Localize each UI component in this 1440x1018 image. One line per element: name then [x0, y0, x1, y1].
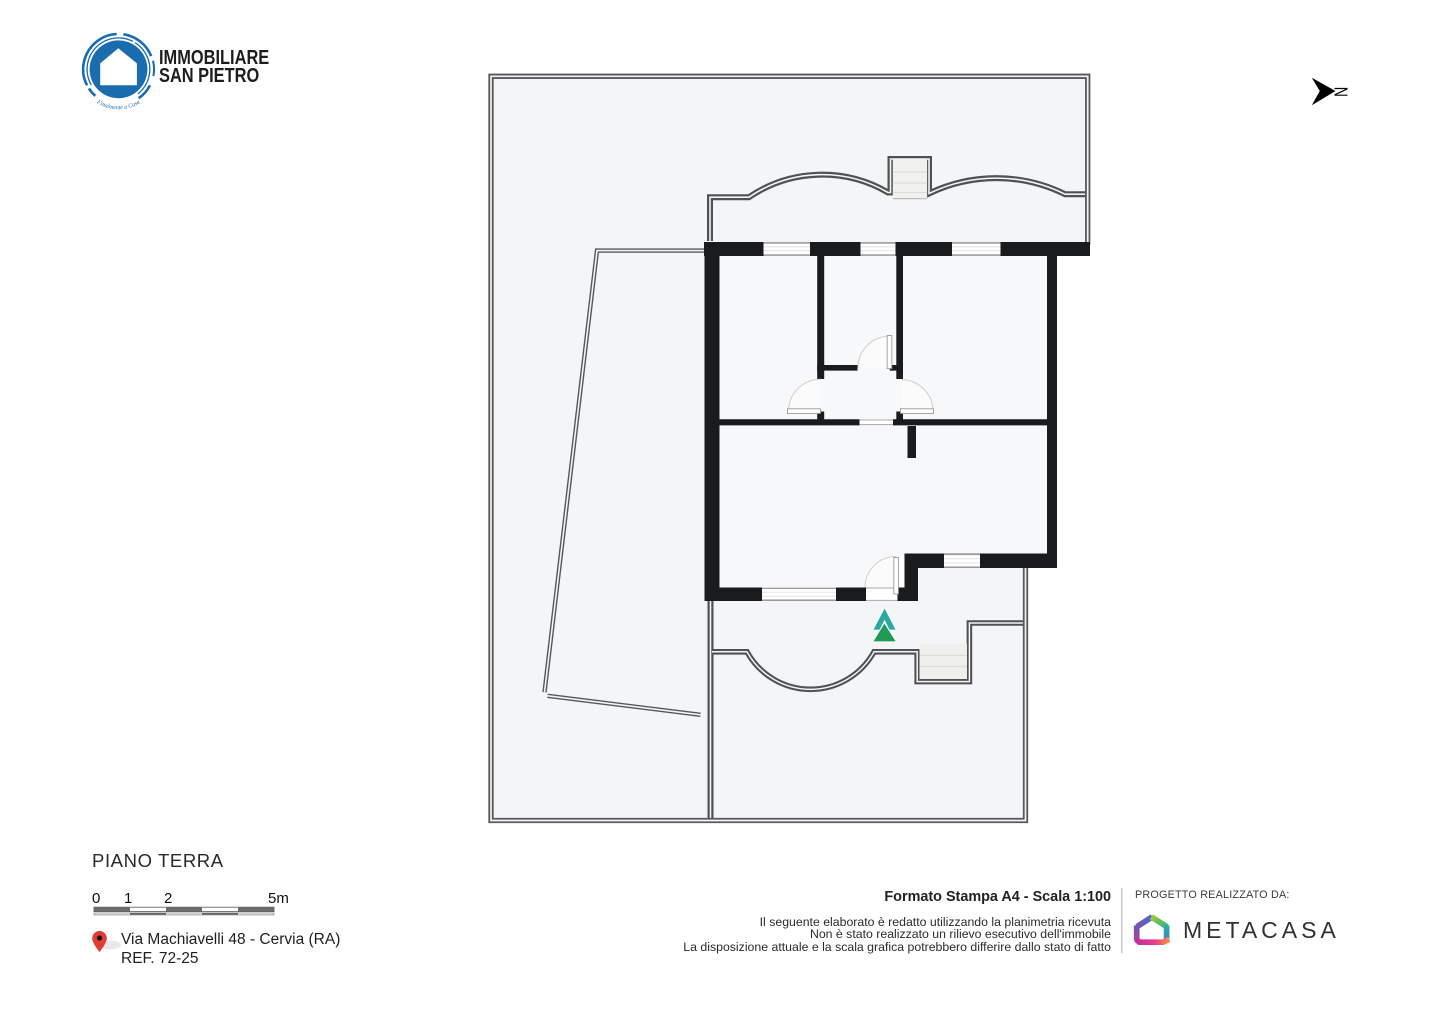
svg-text:N: N — [1330, 87, 1350, 97]
svg-text:Finalmente a Casa: Finalmente a Casa — [95, 99, 141, 111]
